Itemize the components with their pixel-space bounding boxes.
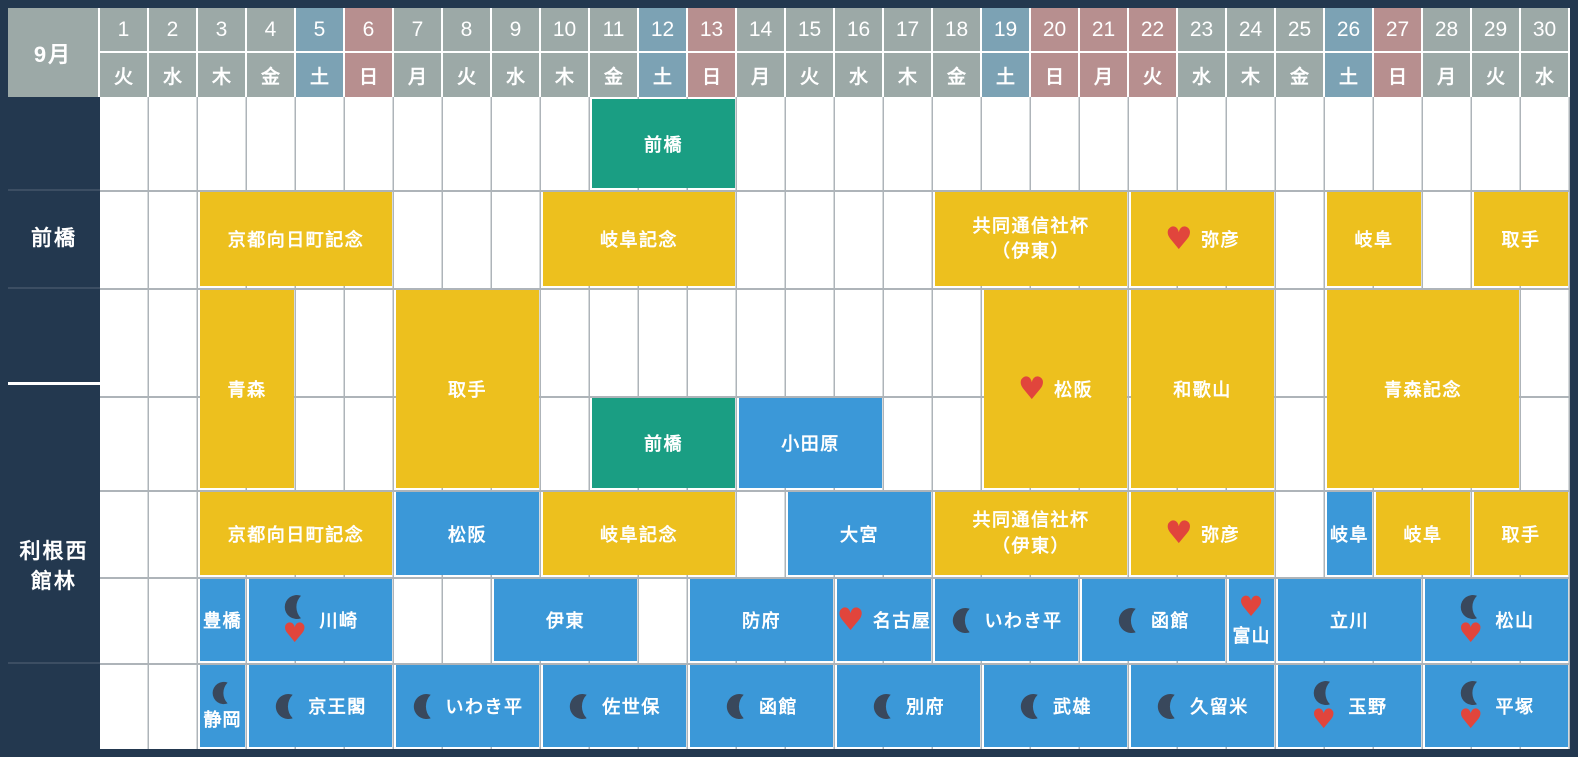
event-label: 岐阜	[1404, 521, 1443, 547]
event-label: 伊東	[546, 607, 585, 633]
moon-icon	[412, 693, 439, 720]
event-label: 函館	[759, 693, 798, 719]
heart-icon: ♥	[1312, 706, 1338, 733]
event-前橋[interactable]: 前橋	[592, 99, 735, 188]
event-label: 共同通信社杯（伊東）	[973, 214, 1090, 264]
event-label: 青森記念	[1384, 376, 1462, 402]
event-弥彦[interactable]: ♥弥彦	[1131, 192, 1274, 286]
event-函館[interactable]: 函館	[690, 665, 833, 747]
header-dow-21: 月	[1080, 53, 1127, 97]
event-岐阜記念[interactable]: 岐阜記念	[543, 192, 735, 286]
event-label: 岐阜記念	[600, 521, 678, 547]
header-dow-1: 火	[100, 53, 147, 97]
event-label: 京都向日町記念	[228, 226, 365, 252]
heart-icon: ♥	[283, 620, 309, 647]
header-dow-11: 金	[590, 53, 637, 97]
header-dow-27: 日	[1374, 53, 1421, 97]
event-京王閣[interactable]: 京王閣	[249, 665, 392, 747]
header-day-13: 13	[688, 8, 735, 51]
moon-icon	[1459, 594, 1485, 620]
keirin-schedule-calendar: 9月 1火2水3木4金5土6日7月8火9水10木11金12土13日14月15火1…	[0, 0, 1578, 757]
event-別府[interactable]: 別府	[837, 665, 980, 747]
event-伊東[interactable]: 伊東	[494, 579, 637, 661]
header-day-29: 29	[1472, 8, 1519, 51]
header-dow-28: 月	[1423, 53, 1470, 97]
event-label: 静岡	[204, 706, 242, 732]
event-label: 岐阜記念	[600, 226, 678, 252]
event-立川[interactable]: 立川	[1278, 579, 1421, 661]
header-dow-30: 水	[1521, 53, 1568, 97]
header-day-17: 17	[884, 8, 931, 51]
event-label: 平塚	[1496, 693, 1535, 719]
header-dow-25: 金	[1276, 53, 1323, 97]
header-day-21: 21	[1080, 8, 1127, 51]
event-松山[interactable]: ♥松山	[1425, 579, 1568, 661]
event-取手[interactable]: 取手	[396, 290, 539, 488]
event-label: 防府	[742, 607, 781, 633]
event-label: 共同通信社杯（伊東）	[973, 508, 1090, 558]
header-dow-7: 月	[394, 53, 441, 97]
header-day-7: 7	[394, 8, 441, 51]
event-岐阜[interactable]: 岐阜	[1376, 492, 1470, 575]
event-label: 大宮	[840, 521, 879, 547]
event-label: 久留米	[1190, 693, 1249, 719]
header-day-4: 4	[247, 8, 294, 51]
event-京都向日町記念[interactable]: 京都向日町記念	[200, 492, 392, 575]
moon-icon	[283, 594, 309, 620]
event-前橋[interactable]: 前橋	[592, 398, 735, 488]
event-武雄[interactable]: 武雄	[984, 665, 1127, 747]
event-大宮[interactable]: 大宮	[788, 492, 931, 575]
moon-icon	[1312, 680, 1338, 706]
moon-icon	[1156, 693, 1183, 720]
month-label: 9月	[34, 37, 72, 69]
moon-icon	[1019, 693, 1046, 720]
moon-icon	[951, 607, 978, 634]
sidebar-label-line-1: 利根西	[20, 537, 89, 567]
heart-icon: ♥	[1459, 620, 1485, 647]
header-dow-19: 土	[982, 53, 1029, 97]
event-label: 函館	[1151, 607, 1190, 633]
header-day-25: 25	[1276, 8, 1323, 51]
event-共同通信社杯[interactable]: 共同通信社杯（伊東）	[935, 192, 1127, 286]
event-いわき平[interactable]: いわき平	[935, 579, 1078, 661]
header-day-22: 22	[1129, 8, 1176, 51]
heart-icon: ♥	[1018, 374, 1047, 405]
heart-icon: ♥	[837, 605, 866, 636]
event-青森[interactable]: 青森	[200, 290, 294, 488]
event-弥彦[interactable]: ♥弥彦	[1131, 492, 1274, 575]
header-dow-18: 金	[933, 53, 980, 97]
header-dow-3: 木	[198, 53, 245, 97]
header-dow-9: 水	[492, 53, 539, 97]
header-day-30: 30	[1521, 8, 1568, 51]
event-label: 武雄	[1053, 693, 1092, 719]
header-dow-26: 土	[1325, 53, 1372, 97]
event-松阪[interactable]: ♥松阪	[984, 290, 1127, 488]
event-和歌山[interactable]: 和歌山	[1131, 290, 1274, 488]
event-岐阜[interactable]: 岐阜	[1327, 492, 1372, 575]
header-dow-20: 日	[1031, 53, 1078, 97]
header-dow-16: 水	[835, 53, 882, 97]
header-day-14: 14	[737, 8, 784, 51]
icon-stack: ♥	[1459, 594, 1485, 647]
header-dow-4: 金	[247, 53, 294, 97]
event-label: 弥彦	[1201, 521, 1240, 547]
header-day-10: 10	[541, 8, 588, 51]
event-label: 和歌山	[1173, 376, 1232, 402]
moon-icon	[568, 693, 595, 720]
event-防府[interactable]: 防府	[690, 579, 833, 661]
header-day-11: 11	[590, 8, 637, 51]
header-dow-15: 火	[786, 53, 833, 97]
header-day-26: 26	[1325, 8, 1372, 51]
event-label: 前橋	[644, 131, 683, 157]
event-label: 立川	[1330, 607, 1369, 633]
header-dow-5: 土	[296, 53, 343, 97]
event-豊橋[interactable]: 豊橋	[200, 579, 245, 661]
icon-stack: ♥	[283, 594, 309, 647]
event-玉野[interactable]: ♥玉野	[1278, 665, 1421, 747]
event-label: 取手	[448, 376, 487, 402]
event-静岡[interactable]: 静岡	[200, 665, 245, 747]
event-label: 京都向日町記念	[228, 521, 365, 547]
icon-stack: ♥	[1459, 680, 1485, 733]
event-いわき平[interactable]: いわき平	[396, 665, 539, 747]
header-day-6: 6	[345, 8, 392, 51]
event-label: 岐阜	[1330, 521, 1369, 547]
header-day-27: 27	[1374, 8, 1421, 51]
event-共同通信社杯[interactable]: 共同通信社杯（伊東）	[935, 492, 1127, 575]
moon-icon	[274, 693, 301, 720]
moon-icon	[725, 693, 752, 720]
moon-icon	[211, 681, 235, 705]
heart-icon: ♥	[1459, 706, 1485, 733]
event-label: 豊橋	[203, 607, 242, 633]
header-day-9: 9	[492, 8, 539, 51]
event-label: 前橋	[644, 430, 683, 456]
header-day-19: 19	[982, 8, 1029, 51]
icon-stack: ♥	[1312, 680, 1338, 733]
event-label: いわき平	[446, 693, 524, 719]
sidebar-label-line-2: 館林	[31, 567, 77, 597]
header-day-1: 1	[100, 8, 147, 51]
event-label: 小田原	[781, 430, 840, 456]
event-松阪[interactable]: 松阪	[396, 492, 539, 575]
header-day-28: 28	[1423, 8, 1470, 51]
header-dow-13: 日	[688, 53, 735, 97]
header-dow-22: 火	[1129, 53, 1176, 97]
event-label: 取手	[1502, 521, 1541, 547]
event-取手[interactable]: 取手	[1474, 192, 1568, 286]
header-dow-14: 月	[737, 53, 784, 97]
event-label: 佐世保	[602, 693, 661, 719]
sidebar-label-maebashi-text: 前橋	[31, 224, 77, 254]
event-岐阜[interactable]: 岐阜	[1327, 192, 1421, 286]
event-label: 弥彦	[1201, 226, 1240, 252]
event-佐世保[interactable]: 佐世保	[543, 665, 686, 747]
event-label: 名古屋	[873, 607, 932, 633]
sidebar-label-tonenishi-tatebayashi: 利根西 館林	[8, 385, 100, 749]
month-label-cell: 9月	[8, 8, 98, 97]
event-名古屋[interactable]: ♥名古屋	[837, 579, 931, 661]
event-label: 松山	[1496, 607, 1535, 633]
header-day-5: 5	[296, 8, 343, 51]
header-dow-23: 水	[1178, 53, 1225, 97]
header-dow-8: 火	[443, 53, 490, 97]
event-函館[interactable]: 函館	[1082, 579, 1225, 661]
header-day-16: 16	[835, 8, 882, 51]
header-dow-2: 水	[149, 53, 196, 97]
event-京都向日町記念[interactable]: 京都向日町記念	[200, 192, 392, 286]
header-dow-24: 木	[1227, 53, 1274, 97]
heart-icon: ♥	[1165, 224, 1194, 255]
header-dow-12: 土	[639, 53, 686, 97]
event-平塚[interactable]: ♥平塚	[1425, 665, 1568, 747]
header-day-2: 2	[149, 8, 196, 51]
moon-icon	[1459, 680, 1485, 706]
event-久留米[interactable]: 久留米	[1131, 665, 1274, 747]
event-label: いわき平	[985, 607, 1063, 633]
moon-icon	[1117, 607, 1144, 634]
header-day-3: 3	[198, 8, 245, 51]
event-川崎[interactable]: ♥川崎	[249, 579, 392, 661]
event-label: 取手	[1502, 226, 1541, 252]
header-day-15: 15	[786, 8, 833, 51]
event-label: 青森	[228, 376, 267, 402]
sidebar-label-maebashi: 前橋	[8, 190, 100, 288]
heart-icon: ♥	[1165, 518, 1194, 549]
event-label: 岐阜	[1355, 226, 1394, 252]
header-dow-17: 木	[884, 53, 931, 97]
header-day-20: 20	[1031, 8, 1078, 51]
header-day-18: 18	[933, 8, 980, 51]
header-day-24: 24	[1227, 8, 1274, 51]
event-label: 富山	[1233, 622, 1271, 648]
event-小田原[interactable]: 小田原	[739, 398, 882, 488]
header-dow-10: 木	[541, 53, 588, 97]
moon-icon	[872, 693, 899, 720]
event-label: 京王閣	[308, 693, 367, 719]
event-label: 松阪	[1054, 376, 1093, 402]
event-label: 別府	[906, 693, 945, 719]
heart-icon: ♥	[1238, 593, 1264, 621]
event-label: 松阪	[448, 521, 487, 547]
header-dow-29: 火	[1472, 53, 1519, 97]
event-岐阜記念[interactable]: 岐阜記念	[543, 492, 735, 575]
event-富山[interactable]: ♥富山	[1229, 579, 1274, 661]
event-取手[interactable]: 取手	[1474, 492, 1568, 575]
header-day-12: 12	[639, 8, 686, 51]
event-青森記念[interactable]: 青森記念	[1327, 290, 1519, 488]
event-label: 玉野	[1349, 693, 1388, 719]
header-dow-6: 日	[345, 53, 392, 97]
event-label: 川崎	[320, 607, 359, 633]
header-day-23: 23	[1178, 8, 1225, 51]
header-day-8: 8	[443, 8, 490, 51]
